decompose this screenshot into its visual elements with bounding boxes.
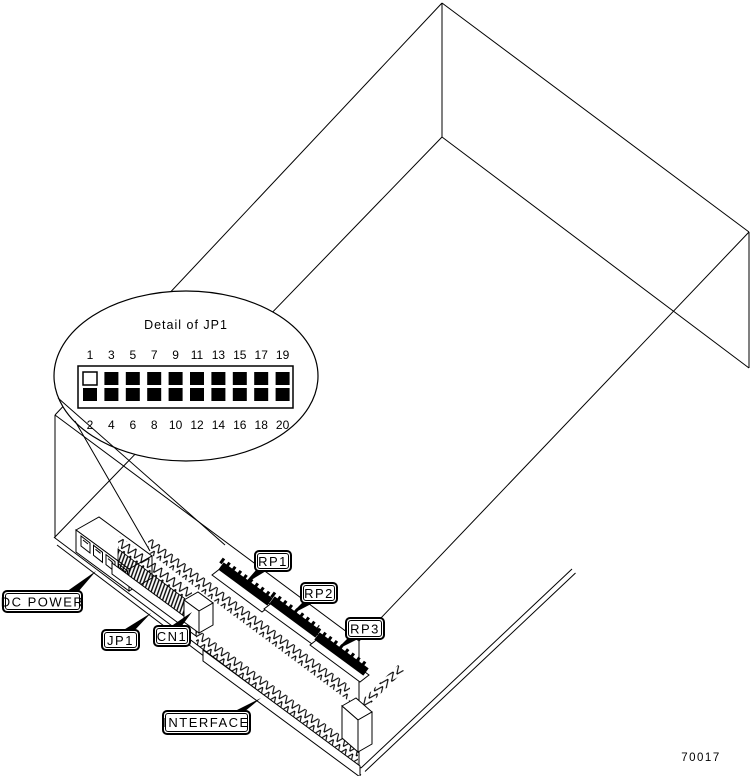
jumper-pin-2 <box>83 388 97 401</box>
corner-pin-row <box>360 665 404 708</box>
pin-number-bottom: 18 <box>255 418 269 432</box>
jumper-pin-12 <box>190 388 204 401</box>
jumper-pin-17 <box>254 372 268 385</box>
jumper-pin-13 <box>211 372 225 385</box>
pin-number-bottom: 12 <box>190 418 204 432</box>
jumper-pin-1 <box>83 372 97 385</box>
pin-number-bottom: 8 <box>151 418 158 432</box>
pin-number-bottom: 14 <box>212 418 226 432</box>
interface-label-text: INTERFACE <box>163 715 249 730</box>
pin-number-top: 9 <box>172 348 179 362</box>
jumper-pin-20 <box>276 388 290 401</box>
label-rp1: RP1 <box>243 551 291 585</box>
cn1-label-text: CN1 <box>157 629 188 644</box>
jp1-label-text: JP1 <box>107 633 134 648</box>
jumper-pin-3 <box>104 372 118 385</box>
jumper-pin-16 <box>233 388 247 401</box>
jumper-pin-4 <box>104 388 118 401</box>
jumper-pin-15 <box>233 372 247 385</box>
detail-callout-oval: Detail of JP1 135791113151719 2468101214… <box>54 291 318 461</box>
jumper-pin-19 <box>276 372 290 385</box>
figure-number: 70017 <box>681 752 720 764</box>
jumper-pin-9 <box>169 372 183 385</box>
jumper-pin-7 <box>147 372 161 385</box>
label-rp2: RP2 <box>290 583 337 615</box>
rp1-label-text: RP1 <box>258 554 288 569</box>
jumper-pin-18 <box>254 388 268 401</box>
figure-page: Detail of JP1 135791113151719 2468101214… <box>0 0 751 776</box>
label-dc-power: DC POWER <box>1 571 96 612</box>
pin-number-top: 1 <box>87 348 94 362</box>
detail-title: Detail of JP1 <box>144 318 228 332</box>
dc-power-label-text: DC POWER <box>1 595 85 610</box>
drive-diagram: Detail of JP1 135791113151719 2468101214… <box>0 0 751 776</box>
rp3-label-text: RP3 <box>350 622 380 637</box>
rp2-label-text: RP2 <box>304 586 334 601</box>
pin-number-bottom: 16 <box>233 418 247 432</box>
pin-number-top: 3 <box>108 348 115 362</box>
jumper-pin-5 <box>126 372 140 385</box>
label-rp3: RP3 <box>336 618 384 650</box>
pin-number-bottom: 20 <box>276 418 290 432</box>
jumper-pin-14 <box>211 388 225 401</box>
pin-number-bottom: 2 <box>87 418 94 432</box>
jumper-pin-8 <box>147 388 161 401</box>
jumper-pin-11 <box>190 372 204 385</box>
jumper-pin-10 <box>169 388 183 401</box>
pin-number-top: 5 <box>129 348 136 362</box>
jumper-pin-6 <box>126 388 140 401</box>
pin-number-top: 13 <box>212 348 226 362</box>
pin-number-top: 19 <box>276 348 290 362</box>
pin-number-bottom: 4 <box>108 418 115 432</box>
pin-number-bottom: 6 <box>129 418 136 432</box>
label-interface: INTERFACE <box>163 698 261 734</box>
pin-number-top: 15 <box>233 348 247 362</box>
pin-number-top: 17 <box>255 348 269 362</box>
pin-number-bottom: 10 <box>169 418 183 432</box>
label-jp1: JP1 <box>102 613 151 650</box>
pin-number-top: 11 <box>191 348 204 362</box>
pin-number-top: 7 <box>151 348 158 362</box>
